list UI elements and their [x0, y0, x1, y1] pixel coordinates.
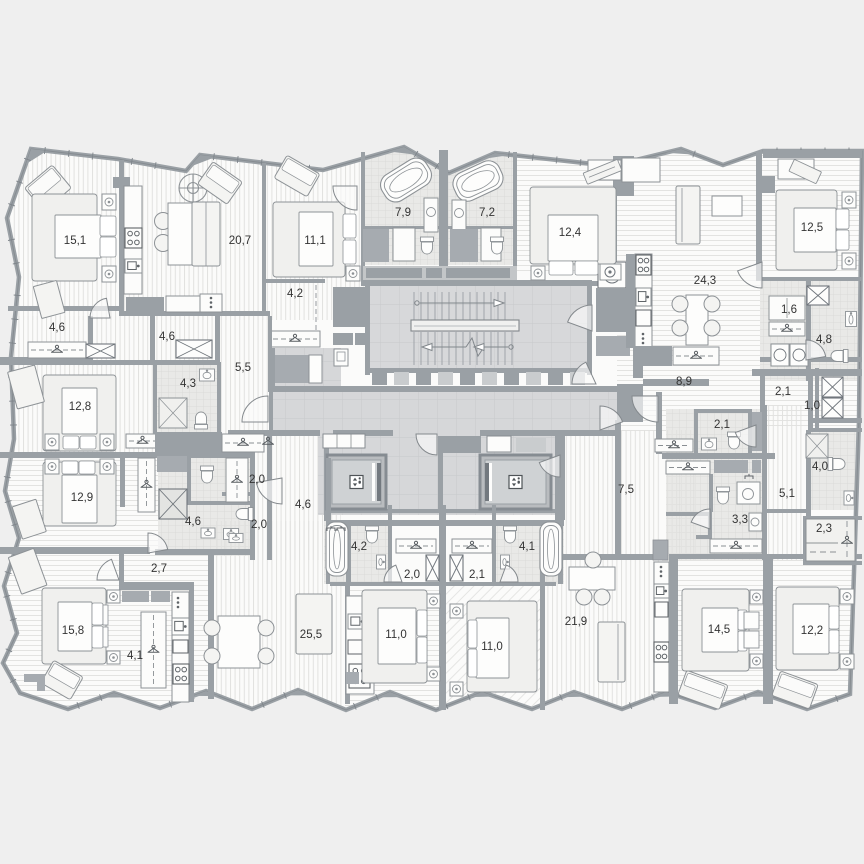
- svg-text:5,1: 5,1: [779, 488, 795, 500]
- svg-text:4,8: 4,8: [816, 334, 832, 346]
- svg-text:1,0: 1,0: [804, 400, 820, 412]
- svg-text:7,2: 7,2: [479, 207, 495, 219]
- svg-text:12,8: 12,8: [69, 401, 91, 413]
- svg-text:11,0: 11,0: [385, 629, 407, 641]
- svg-text:7,5: 7,5: [618, 484, 634, 496]
- svg-text:2,3: 2,3: [816, 523, 832, 535]
- svg-text:8,9: 8,9: [676, 376, 692, 388]
- svg-text:12,2: 12,2: [801, 625, 823, 637]
- svg-text:4,1: 4,1: [519, 541, 535, 553]
- svg-text:2,1: 2,1: [469, 569, 485, 581]
- svg-text:2,0: 2,0: [404, 569, 420, 581]
- svg-text:12,9: 12,9: [71, 492, 93, 504]
- svg-text:1,6: 1,6: [781, 304, 797, 316]
- svg-text:15,1: 15,1: [64, 235, 86, 247]
- svg-text:2,7: 2,7: [151, 563, 167, 575]
- svg-text:4,6: 4,6: [185, 516, 201, 528]
- svg-text:24,3: 24,3: [694, 275, 716, 287]
- svg-text:4,2: 4,2: [351, 541, 367, 553]
- svg-text:12,4: 12,4: [559, 227, 582, 239]
- svg-text:14,5: 14,5: [708, 624, 730, 636]
- svg-text:2,1: 2,1: [775, 386, 791, 398]
- svg-text:2,0: 2,0: [251, 519, 267, 531]
- svg-text:5,5: 5,5: [235, 362, 251, 374]
- svg-text:4,6: 4,6: [159, 331, 175, 343]
- svg-text:4,2: 4,2: [287, 288, 303, 300]
- svg-text:4,6: 4,6: [49, 322, 65, 334]
- svg-text:15,8: 15,8: [62, 625, 84, 637]
- svg-text:20,7: 20,7: [229, 235, 251, 247]
- svg-text:7,9: 7,9: [395, 207, 411, 219]
- svg-text:12,5: 12,5: [801, 222, 823, 234]
- svg-text:11,0: 11,0: [481, 641, 503, 653]
- svg-text:4,3: 4,3: [180, 378, 196, 390]
- svg-text:3,3: 3,3: [732, 514, 748, 526]
- svg-text:2,0: 2,0: [249, 474, 265, 486]
- svg-text:25,5: 25,5: [300, 629, 322, 641]
- svg-text:4,6: 4,6: [295, 499, 311, 511]
- svg-text:4,0: 4,0: [812, 461, 828, 473]
- svg-text:21,9: 21,9: [565, 616, 587, 628]
- svg-text:11,1: 11,1: [304, 235, 326, 247]
- svg-text:4,1: 4,1: [127, 650, 143, 662]
- svg-text:2,1: 2,1: [714, 419, 730, 431]
